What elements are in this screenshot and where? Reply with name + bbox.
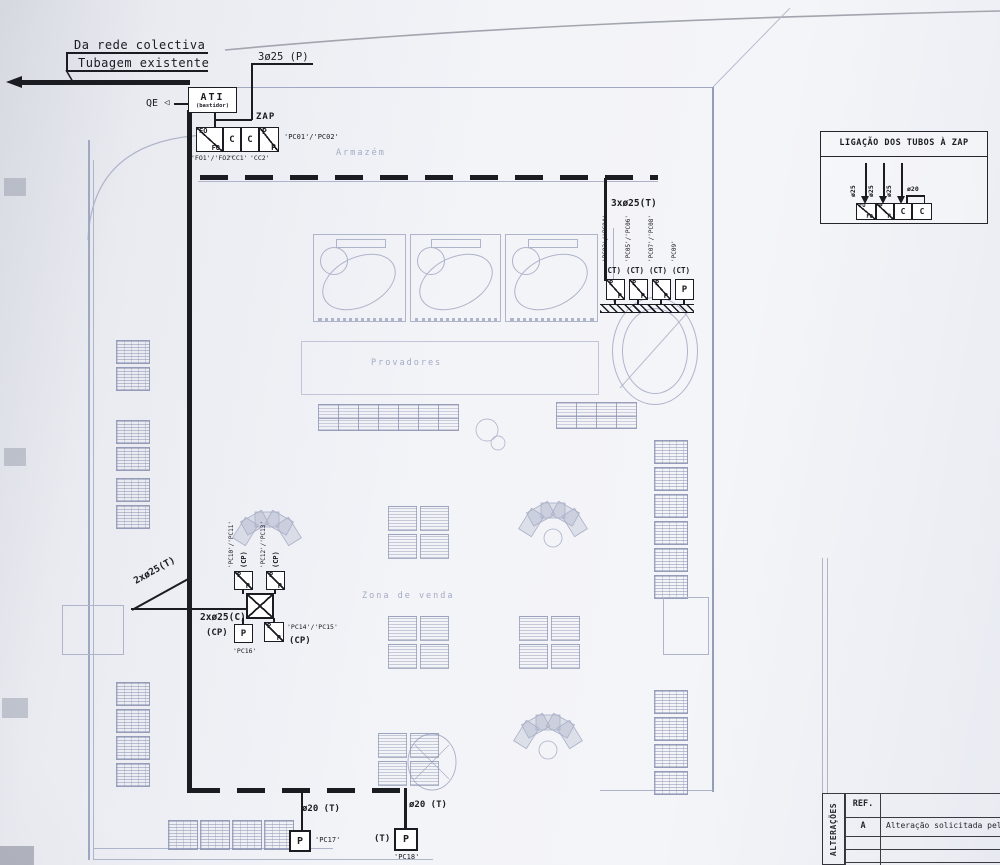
legend-box-c2: C [912,203,932,220]
shelf-unit [654,575,688,599]
zap-box-p: P P [259,127,279,152]
titleblock-line [845,849,1000,850]
wall-bottom2 [93,859,433,860]
drop-right-id: 'PC18' [394,853,419,861]
titleblock-row-desc: Alteração solicitada pela Triumph [886,821,1000,830]
riser-tube-label: 3ø25 (P) [258,51,309,63]
shelf-unit [200,820,230,850]
zap-box-fo: FO FO [196,127,223,152]
cp-tr-id: 'PC12'/'PC13' [260,521,268,568]
shelf-unit [654,771,688,795]
storefront-wall [198,181,658,182]
table-cluster [378,733,440,786]
drop-left-tube: ø20 (T) [302,804,340,814]
shelf-unit [116,420,150,444]
ct-outlet1-id: 'PC03'/'PC04' [602,215,610,262]
shelf-unit [116,447,150,471]
shelf-unit [232,820,262,850]
ct-tube-label: 3xø25(T) [611,198,657,209]
legend-separator [820,156,988,157]
shelf-unit [116,709,150,733]
cp-tl-id: 'PC10'/'PC11' [228,521,236,568]
provadores-room [301,341,599,395]
feed-line [18,80,190,85]
wall-left [88,140,90,860]
titleblock-ref-header: REF. [846,799,880,809]
table-cluster [519,616,581,669]
shelf-unit [116,763,150,787]
shelf-unit [654,521,688,545]
riser-underline [251,63,313,65]
legend-title: LIGAÇÃO DOS TUBOS À ZAP [820,138,988,148]
plan-column [491,436,505,450]
table-cluster [388,506,450,559]
riser-hline [214,119,252,121]
ct-outlet4-id: 'PC09' [671,240,679,262]
legend-tube4-label: ø20 [907,185,919,193]
room-label-sales: Zona de venda [362,591,455,601]
cp-tr-circuit: (CP) [272,551,280,568]
legend-box-c1: C [894,203,912,220]
titleblock-line [845,862,1000,863]
plan-column [476,419,498,441]
ct-circuit4: (CT) [672,266,690,275]
ct-wall-hatch [600,304,694,313]
fitting-room [313,234,406,322]
shelf-unit [116,505,150,529]
ct-circuit3: (CT) [649,266,667,275]
titleblock-line [822,793,1000,794]
ct-outlet3-id: 'PC07'/'PC08' [648,215,656,262]
room-label-storage: Armazém [336,148,386,158]
shelf-unit [654,744,688,768]
cp-tl-box: PP [234,571,253,590]
legend-box-p: PP [876,203,894,220]
wall-top [195,87,713,88]
cp-bl-box: P [234,624,253,643]
drop-left-id: 'PC17' [315,836,340,844]
legend-loop [924,195,926,203]
shelf-unit [116,340,150,364]
drop-left-box: P [289,830,311,852]
fitting-room [410,234,501,322]
riser-vline [251,63,253,120]
shelf-unit [654,717,688,741]
legend-tube1-label: ø25 [849,185,857,197]
margin-line [827,558,828,793]
drop-right-box: P [394,828,418,851]
label-underline-2 [66,70,208,72]
label-underline-1 [66,52,208,54]
qe-label: QE [146,98,158,109]
cp-bl-circuit: (CP) [206,628,228,638]
fitting-room [505,234,598,322]
ct-outlet3-box: PP [652,279,671,300]
ct-circuit2: (CT) [626,266,644,275]
zap-box-c1: C [223,127,241,152]
rack-row [556,402,637,429]
shelf-unit [116,682,150,706]
cp-br-circuit: (CP) [289,636,311,646]
titleblock-line [845,817,1000,818]
cp-junction-box [246,593,274,619]
cp-br-box: PP [264,622,284,642]
cp-horizontal-line [131,608,247,610]
legend-tube2-label: ø25 [867,185,875,197]
drop-right-mark: (T) [374,834,390,844]
blueprint-sheet: Armazém Provadores Zona de venda Da rede… [0,0,1000,865]
main-conduit-riser [187,110,192,793]
ct-outlet2-box: PP [629,279,648,300]
shelf-unit [654,690,688,714]
ceiling-conduit-bottom [192,788,404,793]
shelf-unit [168,820,198,850]
legend-box-fo: FOFO [856,203,876,220]
paper-edge-curve [225,11,1000,50]
shelf-unit [654,440,688,464]
cp-tr-box: PP [266,571,285,590]
drop-right-tube: ø20 (T) [409,800,447,810]
shelf-unit [116,478,150,502]
drop-right-line [404,788,407,828]
shelf-unit [654,494,688,518]
cp-tube-c-label: 2xø25(C) [200,612,246,623]
shelf-unit [116,367,150,391]
legend-tube3-label: ø25 [885,185,893,197]
ct-outlet2-id: 'PC05'/'PC06' [625,215,633,262]
cp-bl-id: 'PC16' [233,647,256,655]
shelf-unit [654,467,688,491]
legend-loop [906,195,925,197]
titleblock-line [880,793,881,865]
titleblock-row-ref: A [846,821,880,831]
zap-label-c1: 'CC1' [228,154,248,162]
zap-title: ZAP [256,112,275,122]
titleblock-side-label: ALTERAÇÕES [829,802,838,855]
label-leader [58,69,78,85]
existing-tubing-label: Tubagem existente [78,56,209,70]
legend-arrow-line [901,163,903,197]
qe-arrow-icon: ◁ [164,98,169,108]
titleblock-line [845,836,1000,837]
entrance-recess [62,605,124,655]
margin-line [822,558,823,793]
legend-loop [906,195,908,203]
wall-right [712,87,714,792]
qe-line [174,103,188,105]
cp-tl-circuit: (CP) [240,551,248,568]
zap-box-c2: C [241,127,259,152]
ceiling-conduit-top [200,175,658,180]
ati-name: ATI [200,92,224,103]
ct-outlet4-box: P [675,279,694,300]
rack-row [318,404,459,431]
wall-left-inner [93,160,94,860]
zap-label-right: 'PC01'/'PC02' [284,133,339,141]
shelf-unit [654,548,688,572]
ct-outlet1-box: PP [606,279,625,300]
stairs-oval-inner [622,308,688,394]
room-label-fitting: Provadores [371,358,442,368]
plan-linework [0,0,1000,865]
cp-br-id: 'PC14'/'PC15' [287,623,338,631]
ati-box: ATI (bastidor) [188,87,237,113]
collective-network-label: Da rede colectiva [74,38,205,52]
wall-niche [663,597,709,655]
titleblock-side-cell: ALTERAÇÕES [822,793,845,865]
shelf-unit [116,736,150,760]
zap-label-c2: 'CC2' [250,154,270,162]
table-cluster [388,616,450,669]
ct-circuit1: (CT) [603,266,621,275]
ati-sub: (bastidor) [196,103,229,109]
